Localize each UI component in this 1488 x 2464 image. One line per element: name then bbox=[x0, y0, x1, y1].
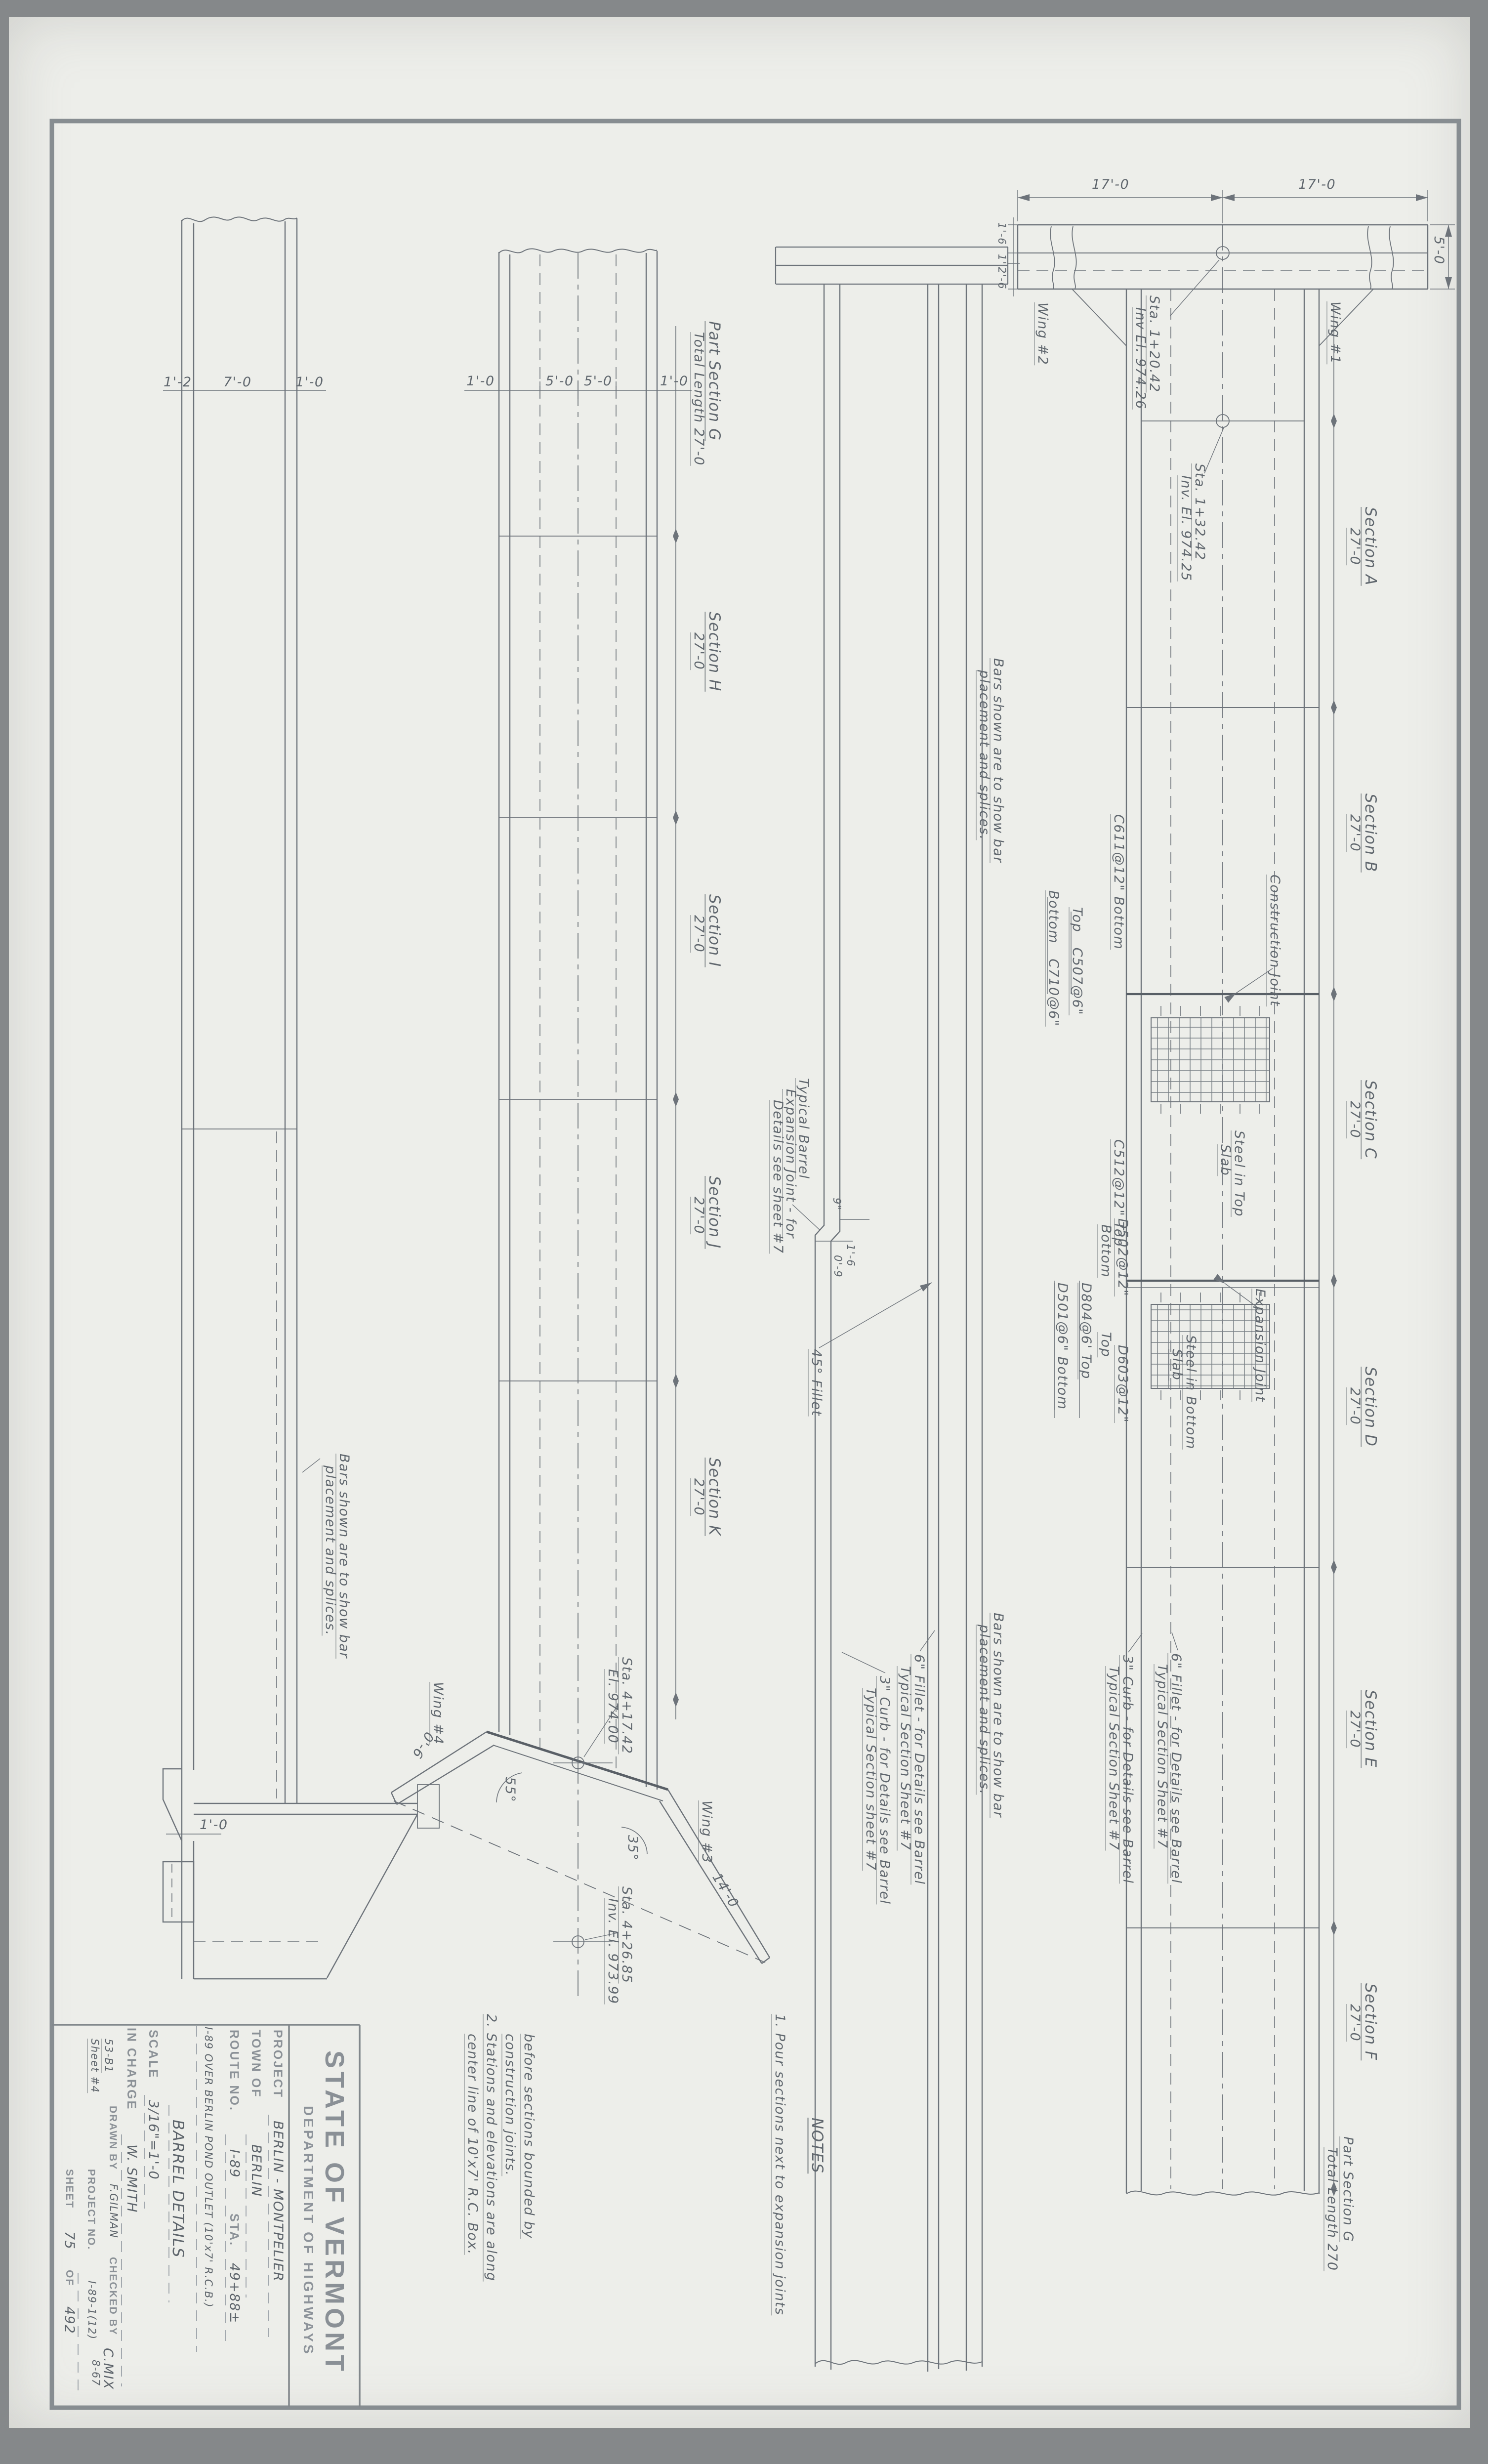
label-section-h-length: 27'-0 bbox=[691, 632, 706, 670]
titleblock-of-label: OF bbox=[63, 2270, 75, 2286]
label-section-i: Section I bbox=[705, 894, 723, 967]
label-part-section-g: Part Section G bbox=[705, 321, 723, 441]
titleblock-town-label: TOWN OF bbox=[248, 2030, 263, 2098]
titleblock-sheets-total: 492 bbox=[62, 2306, 77, 2334]
titleblock-incharge-value: W. SMITH bbox=[124, 2144, 139, 2213]
dim-2ft6-edge: 2'-6 bbox=[996, 267, 1008, 290]
label-section-h: Section H bbox=[705, 612, 723, 692]
label-steel-in-bottom-slab-1: Steel in Bottom bbox=[1183, 1335, 1199, 1450]
titleblock-sheet-label: SHEET bbox=[63, 2169, 75, 2209]
callout-construction-joint: Construction Joint bbox=[1267, 875, 1282, 1006]
callout-6in-fillet-s4: 6" Fillet - for Details see Barrel bbox=[1168, 1653, 1184, 1883]
label-section-a-length: 27'-0 bbox=[1347, 528, 1363, 565]
label-section-i-length: 27'-0 bbox=[691, 915, 706, 953]
label-section-b: Section B bbox=[1362, 793, 1379, 873]
bars-note3-line1: Bars shown are to show bar bbox=[991, 1613, 1006, 1818]
rebar-c507: Top C507@6" bbox=[1070, 907, 1085, 1015]
titleblock-projno-value: I-89-1(12) bbox=[86, 2281, 98, 2340]
bars-note-line1: Bars shown are to show bar bbox=[336, 1454, 352, 1659]
note-1-line-3: construction joints. bbox=[502, 2034, 518, 2176]
dim-17ft-right: 17'-0 bbox=[1298, 177, 1336, 192]
callout-3in-curb-s4: 3" Curb - for Details see Barrel bbox=[1120, 1655, 1135, 1883]
callout-6in-fillet-s3: 6" Fillet - for Details see Barrel bbox=[911, 1654, 927, 1884]
dim-s2-2: 5'-0 bbox=[545, 374, 574, 389]
callout-sta-1-32-42: Sta. 1+32.42 bbox=[1192, 463, 1207, 561]
label-part-section-g-s4-length: Total Length 270 bbox=[1324, 2147, 1340, 2271]
label-steel-in-top-slab-2: Slab bbox=[1218, 1144, 1233, 1176]
dim-1ft-edge: 1' bbox=[996, 254, 1008, 265]
dim-7ft0: 7'-0 bbox=[223, 375, 252, 390]
titleblock-drawn-value: F.GILMAN bbox=[108, 2184, 120, 2238]
dim-5ft0-headwall: 5'-0 bbox=[1431, 236, 1447, 265]
titleblock-drawing-title: BARREL DETAILS bbox=[169, 2120, 187, 2258]
callout-3in-curb-s3-ref: Typical Section sheet #7 bbox=[863, 1688, 878, 1871]
rebar-d502: D502@12" bbox=[1115, 1218, 1130, 1296]
dim-1ft2: 1'-2 bbox=[164, 375, 192, 390]
titleblock-project-label: PROJECT bbox=[270, 2030, 285, 2098]
dim-s2-4: 1'-0 bbox=[660, 374, 689, 389]
callout-inv-el-974-26: Inv El. 974.26 bbox=[1133, 307, 1148, 410]
titleblock-project-value: BERLIN - MONTPELIER bbox=[270, 2121, 286, 2282]
callout-6in-fillet-s4-ref: Typical Section Sheet #7 bbox=[1155, 1664, 1170, 1849]
bars-note3-line2: placement and splices. bbox=[977, 1625, 992, 1795]
label-part-section-g-length: Total Length 27'-0 bbox=[691, 332, 706, 466]
label-section-e-length: 27'-0 bbox=[1347, 1711, 1363, 1748]
corner-file-no: 53-B1 bbox=[103, 2039, 115, 2073]
callout-45-fillet: 45° Fillet bbox=[809, 1349, 824, 1417]
rebar-c611: C611@12" Bottom bbox=[1111, 814, 1126, 950]
label-wing-1: Wing #1 bbox=[1327, 301, 1343, 364]
dim-1ft6-joint: 1'-6 bbox=[845, 1244, 857, 1267]
callout-sta-1-20-42: Sta. 1+20.42 bbox=[1147, 295, 1162, 393]
label-section-k-length: 27'-0 bbox=[691, 1478, 706, 1516]
label-section-j-length: 27'-0 bbox=[691, 1197, 706, 1234]
label-steel-in-bottom-slab-2: Slab bbox=[1169, 1349, 1185, 1380]
note-1-line-1: 1. Pour sections next to expansion joint… bbox=[772, 2014, 787, 2315]
dim-1ft6-edge: 1'-6 bbox=[996, 222, 1008, 245]
label-section-c: Section C bbox=[1362, 1080, 1379, 1159]
rebar-d502-pos: Bottom bbox=[1098, 1224, 1114, 1278]
label-section-e: Section E bbox=[1362, 1690, 1379, 1768]
label-section-f: Section F bbox=[1362, 1983, 1379, 2060]
notes-title: NOTES bbox=[808, 2118, 826, 2173]
note-2-line-2: center line of 10'x7' R.C. Box. bbox=[465, 2034, 480, 2255]
callout-3in-curb-s3: 3" Curb - for Details see Barrel bbox=[877, 1676, 892, 1904]
titleblock-projno-label: PROJECT NO. bbox=[85, 2169, 97, 2250]
titleblock-drawn-label: DRAWN BY bbox=[107, 2106, 119, 2170]
rebar-d501: D501@6" Bottom bbox=[1055, 1283, 1070, 1410]
titleblock-scale-value: 3/16"=1'-0 bbox=[146, 2100, 161, 2180]
label-section-k: Section K bbox=[705, 1458, 723, 1536]
label-section-b-length: 27'-0 bbox=[1347, 814, 1363, 852]
callout-el-974-00: El. 974.00 bbox=[605, 1669, 620, 1744]
rebar-d603-pos: Top bbox=[1098, 1332, 1114, 1357]
angle-55: 55° bbox=[502, 1777, 518, 1802]
callout-sta-4-17-42: Sta. 4+17.42 bbox=[619, 1657, 634, 1754]
bars-note-line2: placement and splices. bbox=[323, 1465, 338, 1636]
titleblock-checked-date: 8-67 bbox=[90, 2360, 102, 2386]
rebar-d804: D804@6' Top bbox=[1078, 1283, 1094, 1379]
titleblock-checked-value: C.MIX bbox=[100, 2348, 116, 2390]
rebar-c710: Bottom C710@6" bbox=[1046, 890, 1061, 1027]
titleblock-route-value: I-89 bbox=[227, 2149, 242, 2178]
callout-3in-curb-s4-ref: Typical Section Sheet #7 bbox=[1106, 1666, 1121, 1851]
label-wing-2: Wing #2 bbox=[1035, 302, 1050, 365]
wing-dim-1ft0: 1'-0 bbox=[200, 1817, 228, 1833]
titleblock-sheet-no: 75 bbox=[62, 2231, 77, 2250]
label-part-section-g-s4: Part Section G bbox=[1340, 2136, 1356, 2242]
titleblock-route-label: ROUTE NO. bbox=[227, 2030, 241, 2112]
scanned-drawing-sheet: 1'-2 7'-0 1'-0 1'-0 Bars shown are to sh… bbox=[0, 0, 1488, 2464]
titleblock-scale-label: SCALE bbox=[146, 2030, 160, 2079]
label-steel-in-top-slab-1: Steel in Top bbox=[1232, 1130, 1247, 1217]
titleblock-agency: STATE OF VERMONT bbox=[319, 2050, 350, 2375]
titleblock-sta-value: 49+88± bbox=[227, 2263, 242, 2324]
dim-s2-1: 1'-0 bbox=[466, 374, 495, 389]
titleblock-town-value: BERLIN bbox=[248, 2144, 264, 2197]
callout-inv-el-973-99: Inv. El. 973.99 bbox=[605, 1898, 620, 2005]
dim-17ft-left: 17'-0 bbox=[1092, 177, 1129, 192]
drawing-linework bbox=[0, 0, 1488, 2464]
callout-sta-4-26-85: Sta. 4+26.85 bbox=[619, 1886, 634, 1984]
label-section-j: Section J bbox=[705, 1176, 723, 1249]
bars-note2-line1: Bars shown are to show bar bbox=[991, 658, 1006, 863]
dim-9in: 9" bbox=[831, 1198, 843, 1211]
titleblock-department: DEPARTMENT OF HIGHWAYS bbox=[300, 2106, 316, 2356]
dim-1ft0: 1'-0 bbox=[295, 375, 324, 390]
dim-s2-3: 5'-0 bbox=[584, 374, 613, 389]
callout-typical-barrel-3: Details see sheet #7 bbox=[770, 1100, 785, 1253]
rebar-d603: D603@12" bbox=[1115, 1345, 1130, 1423]
dim-0ft9-joint: 0'-9 bbox=[832, 1255, 844, 1278]
label-section-d: Section D bbox=[1362, 1367, 1379, 1447]
titleblock-checked-label: CHECKED BY bbox=[107, 2257, 119, 2336]
label-section-a: Section A bbox=[1362, 507, 1379, 586]
note-1-line-2: before sections bounded by bbox=[521, 2034, 537, 2239]
titleblock-feature: I-89 OVER BERLIN POND OUTLET (10'x7' R.C… bbox=[203, 2027, 214, 2308]
corner-sheet-ref: Sheet #4 bbox=[89, 2039, 101, 2093]
label-section-d-length: 27'-0 bbox=[1347, 1387, 1363, 1425]
titleblock-incharge-label: IN CHARGE bbox=[124, 2028, 138, 2110]
note-2-line-1: 2. Stations and elevations are along bbox=[484, 2014, 499, 2282]
angle-35: 35° bbox=[625, 1835, 640, 1861]
titleblock-sta-label: STA. bbox=[227, 2213, 241, 2247]
label-section-c-length: 27'-0 bbox=[1347, 1101, 1363, 1138]
callout-inv-el-974-25: Inv. El. 974.25 bbox=[1178, 475, 1194, 582]
label-section-f-length: 27'-0 bbox=[1347, 2004, 1363, 2042]
callout-6in-fillet-s3-ref: Typical Section Sheet #7 bbox=[898, 1666, 913, 1851]
bars-note2-line2: placement and splices. bbox=[977, 670, 992, 840]
callout-expansion-joint: Expansion Joint bbox=[1252, 1289, 1268, 1402]
label-wing-3: Wing #3 bbox=[699, 1800, 714, 1863]
